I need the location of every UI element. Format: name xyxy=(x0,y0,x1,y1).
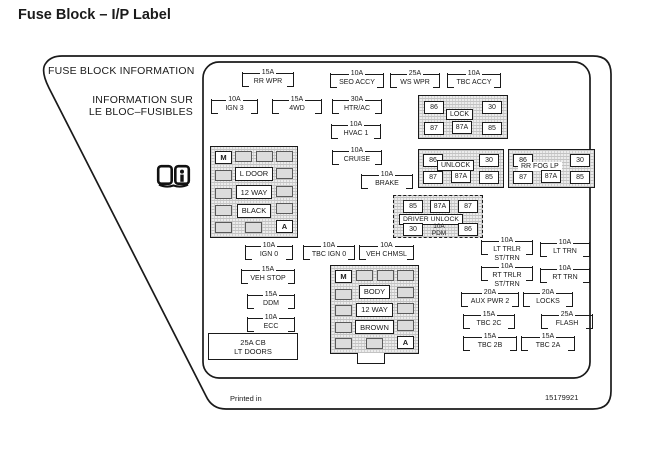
fuse-name: TBC 2B xyxy=(463,341,517,350)
fuse-amp-rating: 15A xyxy=(263,291,279,299)
fuse-veh-chmsl: 10AVEH CHMSL xyxy=(359,241,414,259)
fuse-amp-rating: 15A xyxy=(482,333,498,341)
block-color: BROWN xyxy=(355,320,394,334)
fuse-pdm: 10A PDM xyxy=(427,223,451,237)
fuse-rt-trn: 10ART TRN xyxy=(540,264,590,282)
fuse-hvac-1: 10AHVAC 1 xyxy=(331,120,381,138)
relay-terminal: 85 xyxy=(403,200,423,213)
connector-pin xyxy=(397,287,414,298)
relay-lock: 86 30 LOCK 87 87A 85 xyxy=(418,95,508,139)
fuse-tbc-2c: 15ATBC 2C xyxy=(463,310,515,328)
fuse-tbc-2a: 15ATBC 2A xyxy=(521,332,575,350)
fuse-name: RT TRLR xyxy=(481,271,533,280)
block-way-count: 12 WAY xyxy=(356,303,393,317)
fuse-amp-rating: 10A xyxy=(557,239,573,247)
fuse-name: PDM xyxy=(427,230,451,237)
pin-column-right: A xyxy=(397,270,414,349)
fuse-name: HTR/AC xyxy=(332,104,382,113)
open-book-info-icon xyxy=(156,164,191,190)
fuse-name: DDM xyxy=(247,299,295,308)
footer-part-number: 15179921 xyxy=(545,393,578,402)
connector-pin xyxy=(335,289,352,300)
fuse-name: TBC ACCY xyxy=(447,78,501,87)
relay-terminal: 30 xyxy=(482,101,502,114)
fuse-amp-rating: 15A xyxy=(260,266,276,274)
fuse-ecc: 10AECC xyxy=(247,313,295,331)
fuse-name: LT TRN xyxy=(540,247,590,256)
fuse-veh-stop: 15AVEH STOP xyxy=(241,265,295,283)
fuse-name: TBC 2C xyxy=(463,319,515,328)
block-name: L DOOR xyxy=(235,167,273,181)
connector-pin xyxy=(377,270,394,281)
fuse-amp-rating: 15A xyxy=(289,96,305,104)
fuse-rt-trlr: 10ART TRLRST/TRN xyxy=(481,262,533,289)
pin-column-left: M xyxy=(215,151,232,233)
relay-terminal: 86 xyxy=(424,101,444,114)
connector-pin xyxy=(335,338,352,349)
fuse-4wd: 15A4WD xyxy=(272,95,322,113)
fuse-amp-rating: 10A xyxy=(557,265,573,273)
fuse-lt-trlr: 10ALT TRLRST/TRN xyxy=(481,236,533,263)
fuse-name: AUX PWR 2 xyxy=(461,297,519,306)
relay-label: LOCK xyxy=(446,109,473,120)
pin-column-left: M xyxy=(335,270,352,349)
fuse-block-diagram: Fuse Block – I/P Label FUSE BLOCK INFORM… xyxy=(0,0,650,457)
footer-printed-in: Printed in xyxy=(230,394,262,403)
fuse-locks: 20ALOCKS xyxy=(523,288,573,306)
relay-terminal: 30 xyxy=(403,223,423,236)
relay-terminal: 87A xyxy=(452,121,472,134)
fuse-amp-rating: 15A xyxy=(260,69,276,77)
fuse-name: TBC IGN 0 xyxy=(303,250,355,259)
relay-terminal: 85 xyxy=(570,171,590,184)
fuse-name: BRAKE xyxy=(361,179,413,188)
fuse-name: LOCKS xyxy=(523,297,573,306)
fuse-name: CRUISE xyxy=(332,155,382,164)
fuse-name: RR WPR xyxy=(242,77,294,86)
fuse-name: RT TRN xyxy=(540,273,590,282)
heading-french: INFORMATION SUR LE BLOC–FUSIBLES xyxy=(58,94,193,118)
fuse-amp-rating: 30A xyxy=(349,96,365,104)
fuse-name: LT TRLR xyxy=(481,245,533,254)
fuse-amp-rating: 20A xyxy=(540,289,556,297)
relay-rr-fog-lp: 86 30 RR FOG LP 87 87A 85 xyxy=(508,149,595,188)
block-color: BLACK xyxy=(237,204,272,218)
fuse-amp-rating: 10A xyxy=(378,242,394,250)
connector-pin xyxy=(366,338,383,349)
connector-pin xyxy=(215,205,232,216)
terminal-m: M xyxy=(215,151,232,164)
connector-pin xyxy=(276,168,293,179)
connector-pin xyxy=(276,151,293,162)
connector-pin xyxy=(235,151,252,162)
fuse-amp-rating: 10A xyxy=(349,147,365,155)
fuse-amp-rating: 25A xyxy=(407,70,423,78)
relay-terminal: 85 xyxy=(482,122,502,135)
relay-terminal: 87A xyxy=(541,170,561,183)
fuse-amp-rating: 10A xyxy=(263,314,279,322)
fuse-ign-3: 10AIGN 3 xyxy=(211,95,258,113)
fuse-rr-wpr: 15ARR WPR xyxy=(242,68,294,86)
fuse-name: IGN 0 xyxy=(245,250,293,259)
block-way-count: 12 WAY xyxy=(236,185,273,199)
relay-terminal: 87A xyxy=(451,170,471,183)
fuse-amp-rating: 10A xyxy=(499,237,515,245)
relay-terminal: 86 xyxy=(458,223,478,236)
fuse-amp-rating: 10A xyxy=(348,121,364,129)
fuse-name: 4WD xyxy=(272,104,322,113)
fuse-amp-rating: 10A xyxy=(226,96,242,104)
block-name: BODY xyxy=(359,285,390,299)
fuse-amp-rating: 25A xyxy=(559,311,575,319)
fuse-name: VEH STOP xyxy=(241,274,295,283)
terminal-a: A xyxy=(397,336,414,349)
connector-pin xyxy=(245,222,262,233)
fuse-name: SEO ACCY xyxy=(330,78,384,87)
fuse-name: ECC xyxy=(247,322,295,331)
connector-pin xyxy=(215,170,232,181)
relay-terminal: 87A xyxy=(430,200,450,213)
fuse-amp-rating: 15A xyxy=(540,333,556,341)
breaker-name: LT DOORS xyxy=(234,347,272,356)
relay-unlock: 86 30 UNLOCK 87 87A 85 xyxy=(418,149,504,188)
fuse-brake: 10ABRAKE xyxy=(361,170,413,188)
fuse-tbc-2b: 15ATBC 2B xyxy=(463,332,517,350)
fuse-ws-wpr: 25AWS WPR xyxy=(390,69,440,87)
relay-terminal: 87 xyxy=(424,122,444,135)
relay-terminal: 87 xyxy=(458,200,478,213)
terminal-m: M xyxy=(335,270,352,283)
fuse-amp-rating: 10A xyxy=(321,242,337,250)
connector-pin xyxy=(356,270,373,281)
block-labels: L DOOR 12 WAY BLACK xyxy=(235,151,273,233)
connector-pin xyxy=(335,322,352,333)
fuse-ign-0: 10AIGN 0 xyxy=(245,241,293,259)
relay-terminal: 30 xyxy=(479,154,499,167)
fuse-amp-rating: 10A xyxy=(427,223,451,230)
fuse-name: VEH CHMSL xyxy=(359,250,414,259)
fuse-lt-trn: 10ALT TRN xyxy=(540,238,590,256)
relay-terminal: 85 xyxy=(479,171,499,184)
connector-pin xyxy=(215,222,232,233)
fuse-amp-rating: 10A xyxy=(379,171,395,179)
fuse-amp-rating: 20A xyxy=(482,289,498,297)
fuse-seo-accy: 10ASEO ACCY xyxy=(330,69,384,87)
fuse-ddm: 15ADDM xyxy=(247,290,295,308)
fuse-amp-rating: 10A xyxy=(261,242,277,250)
fuse-aux-pwr-2: 20AAUX PWR 2 xyxy=(461,288,519,306)
fuse-name: TBC 2A xyxy=(521,341,575,350)
fuse-amp-rating: 10A xyxy=(466,70,482,78)
breaker-amp-rating: 25A CB xyxy=(240,338,265,347)
terminal-a: A xyxy=(276,220,293,233)
connector-pin xyxy=(397,303,414,314)
fuse-htr-ac: 30AHTR/AC xyxy=(332,95,382,113)
fuse-tbc-ign-0: 10ATBC IGN 0 xyxy=(303,241,355,259)
heading-french-line1: INFORMATION SUR xyxy=(58,94,193,106)
relay-terminal: 30 xyxy=(570,154,590,167)
connector-pin xyxy=(276,203,293,214)
connector-pin xyxy=(397,320,414,331)
fuse-cruise: 10ACRUISE xyxy=(332,146,382,164)
fuse-name: WS WPR xyxy=(390,78,440,87)
connector-block-l-door: M L DOOR 12 WAY BLACK A xyxy=(210,146,298,238)
fuse-amp-rating: 15A xyxy=(481,311,497,319)
fuse-name: FLASH xyxy=(541,319,593,328)
relay-terminal: 87 xyxy=(423,171,443,184)
heading-english: FUSE BLOCK INFORMATION xyxy=(48,65,195,77)
pin-column-right: A xyxy=(276,151,293,233)
connector-pin xyxy=(335,305,352,316)
fuse-amp-rating: 10A xyxy=(349,70,365,78)
relay-driver-unlock: 85 87A 87 DRIVER UNLOCK 30 10A PDM 86 xyxy=(393,195,483,238)
fuse-amp-rating: 10A xyxy=(499,263,515,271)
fuse-flash: 25AFLASH xyxy=(541,310,593,328)
connector-pin xyxy=(256,151,273,162)
connector-pin xyxy=(397,270,414,281)
connector-block-body: M BODY 12 WAY BROWN A xyxy=(330,265,419,354)
fuse-name: IGN 3 xyxy=(211,104,258,113)
body-block-tab xyxy=(357,353,385,364)
circuit-breaker-lt-doors: 25A CB LT DOORS xyxy=(208,333,298,360)
connector-pin xyxy=(215,188,232,199)
block-labels: BODY 12 WAY BROWN xyxy=(355,270,394,349)
relay-terminal: 87 xyxy=(513,171,533,184)
fuse-tbc-accy: 10ATBC ACCY xyxy=(447,69,501,87)
connector-pin xyxy=(276,186,293,197)
heading-french-line2: LE BLOC–FUSIBLES xyxy=(58,106,193,118)
fuse-name: HVAC 1 xyxy=(331,129,381,138)
